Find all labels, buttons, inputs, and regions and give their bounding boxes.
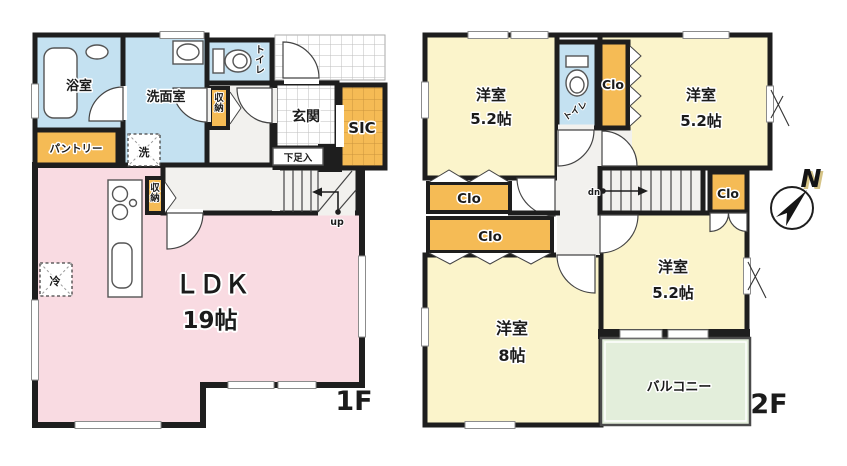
floor-1-plan: 浴室 洗面室 パントリー 洗 トイレ 収納 収納 玄関 下足入 SIC ＬＤＫ …	[32, 32, 386, 429]
label-room-e: 洋室	[658, 258, 688, 276]
label-washer: 洗	[139, 145, 150, 159]
kitchen-counter-icon	[108, 180, 142, 297]
washstand-icon	[173, 41, 203, 64]
floor-plan-drawing: 浴室 洗面室 パントリー 洗 トイレ 収納 収納 玄関 下足入 SIC ＬＤＫ …	[0, 0, 847, 466]
bath-sink-icon	[86, 45, 108, 59]
label-stairs-up: up	[330, 217, 344, 228]
label-closet-w2: Clo	[478, 229, 502, 245]
label-toilet-1f: トイレ	[255, 45, 265, 76]
label-sic: SIC	[348, 119, 375, 137]
label-room-s: 洋室	[496, 319, 528, 338]
label-pantry: パントリー	[49, 143, 102, 155]
label-fridge: 冷	[50, 274, 61, 288]
label-closet-n: Clo	[602, 77, 624, 92]
floor-2-plan: 洋室 5.2帖 洋室 5.2帖 洋室 5.2帖 洋室 8帖 トイレ Clo Cl…	[422, 32, 790, 429]
label-shoe-cabinet: 下足入	[284, 153, 313, 164]
label-closet-e: Clo	[717, 186, 739, 201]
label-balcony: バルコニー	[647, 380, 712, 395]
label-washroom: 洗面室	[146, 89, 185, 105]
label-ldk-size: 19帖	[182, 308, 237, 334]
label-floor-1f: 1F	[335, 386, 372, 417]
label-room-e-size: 5.2帖	[652, 284, 694, 302]
label-room-s-size: 8帖	[498, 346, 525, 365]
hall-1f-horizontal	[163, 165, 275, 213]
room-nw-area	[425, 35, 557, 178]
label-entrance: 玄関	[292, 108, 320, 125]
label-closet-w1: Clo	[457, 191, 481, 207]
toilet-2f-icon	[566, 56, 588, 96]
label-north: N	[801, 164, 822, 193]
toilet-1f-icon	[213, 49, 251, 73]
label-ldk: ＬＤＫ	[174, 270, 249, 299]
floor-plan-page: 浴室 洗面室 パントリー 洗 トイレ 収納 収納 玄関 下足入 SIC ＬＤＫ …	[0, 0, 847, 466]
label-room-ne: 洋室	[686, 86, 716, 104]
label-room-nw-size: 5.2帖	[470, 110, 512, 128]
label-bath: 浴室	[66, 78, 92, 94]
label-storage-kitchen: 収納	[150, 182, 160, 204]
label-room-nw: 洋室	[476, 86, 506, 104]
label-storage-hall: 収納	[214, 92, 224, 114]
label-stairs-dn: dn	[588, 188, 600, 198]
label-room-ne-size: 5.2帖	[680, 112, 722, 130]
label-floor-2f: 2F	[750, 389, 787, 420]
north-compass-icon: N N	[771, 164, 824, 229]
